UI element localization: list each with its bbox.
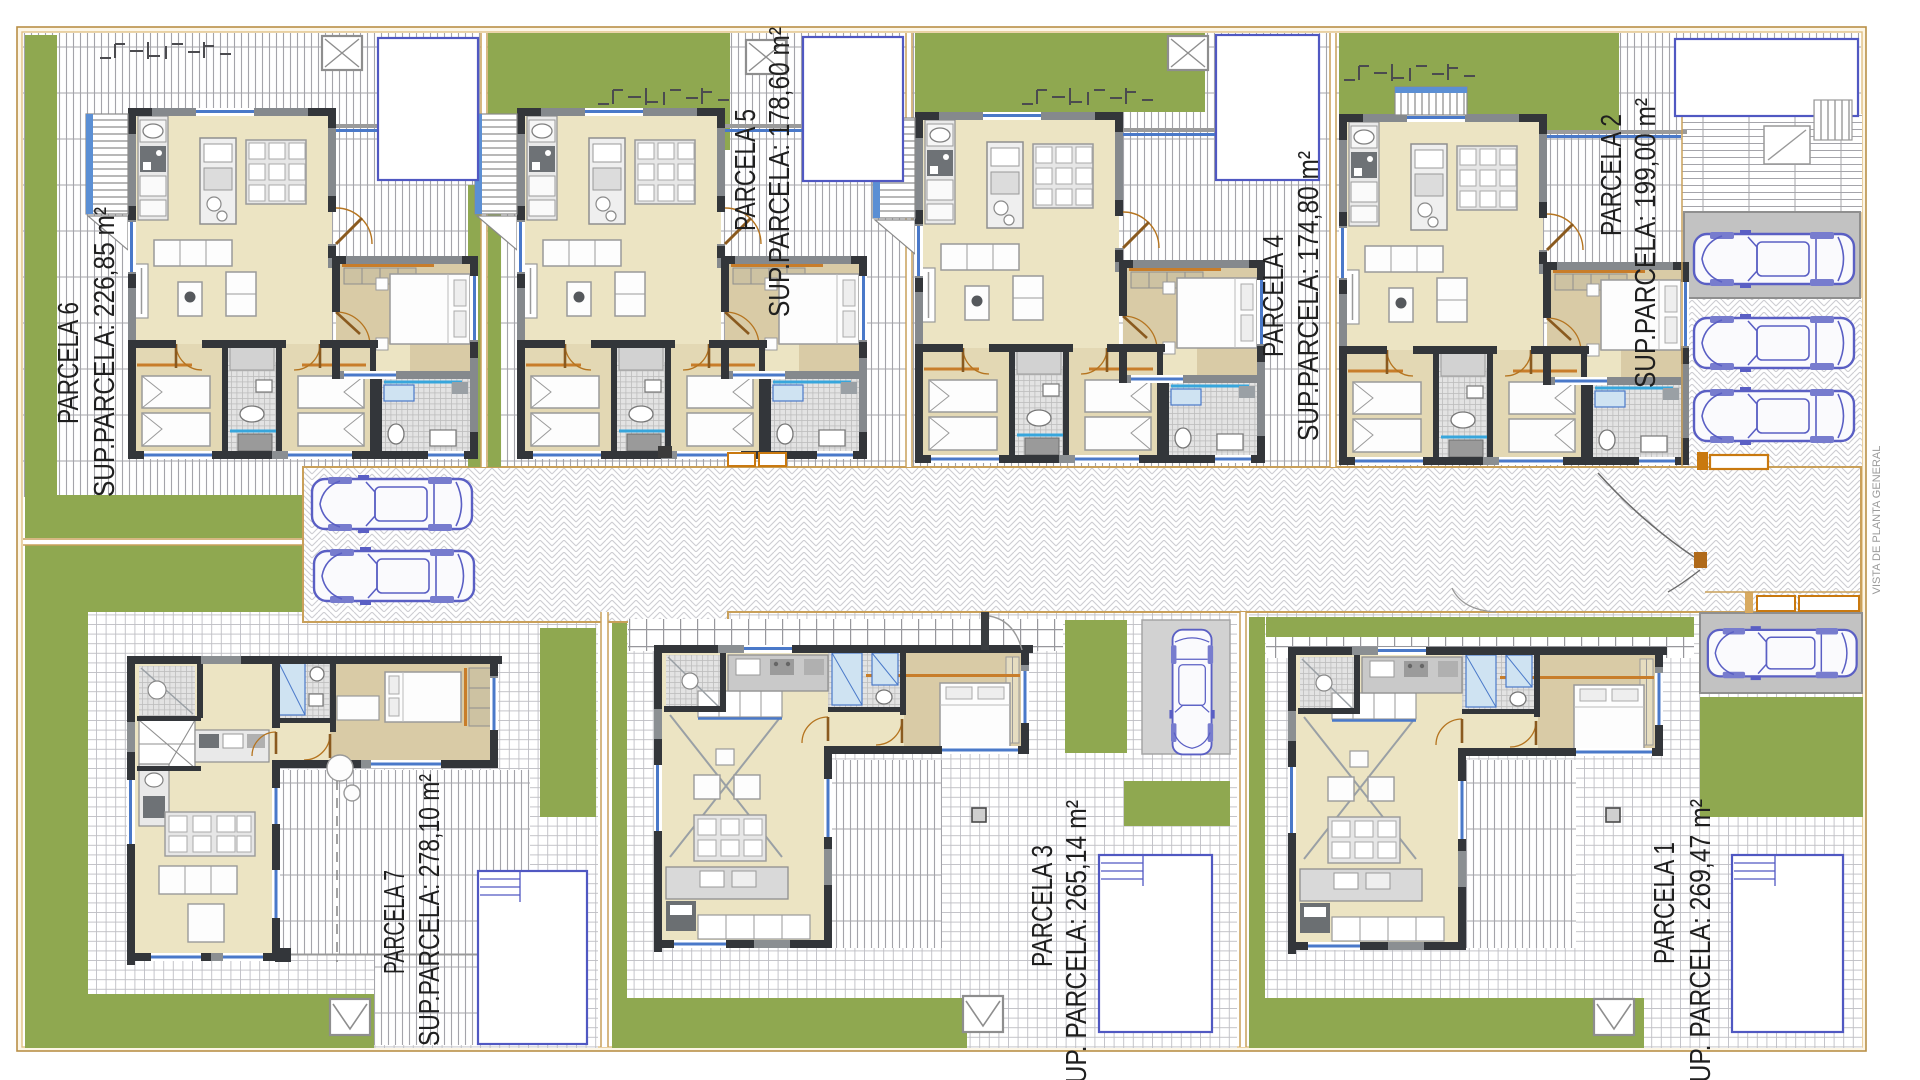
- svg-text:PARCELA 2: PARCELA 2: [1596, 114, 1628, 236]
- svg-text:VISTA DE PLANTA GENERAL: VISTA DE PLANTA GENERAL: [1871, 446, 1883, 595]
- svg-text:SUP.PARCELA: 178,60 m²: SUP.PARCELA: 178,60 m²: [764, 27, 796, 317]
- svg-text:PARCELA 4: PARCELA 4: [1258, 235, 1290, 357]
- svg-text:SUP.PARCELA: 226,85 m²: SUP.PARCELA: 226,85 m²: [89, 207, 121, 497]
- svg-text:PARCELA 6: PARCELA 6: [53, 302, 85, 424]
- svg-text:SUP.PARCELA: 174,80 m²: SUP.PARCELA: 174,80 m²: [1293, 151, 1325, 441]
- svg-text:PARCELA 5: PARCELA 5: [730, 109, 762, 231]
- svg-text:SUP.PARCELA: 199,00 m²: SUP.PARCELA: 199,00 m²: [1630, 98, 1662, 388]
- svg-text:PARCELA 7: PARCELA 7: [379, 870, 411, 974]
- svg-text:PARCELA 1: PARCELA 1: [1649, 842, 1681, 964]
- svg-text:SUP. PARCELA: 265,14 m²: SUP. PARCELA: 265,14 m²: [1061, 800, 1093, 1080]
- svg-text:PARCELA 3: PARCELA 3: [1027, 845, 1059, 967]
- svg-text:SUP. PARCELA: 269,47 m²: SUP. PARCELA: 269,47 m²: [1685, 799, 1717, 1080]
- svg-text:SUP.PARCELA: 278,10 m²: SUP.PARCELA: 278,10 m²: [414, 774, 446, 1046]
